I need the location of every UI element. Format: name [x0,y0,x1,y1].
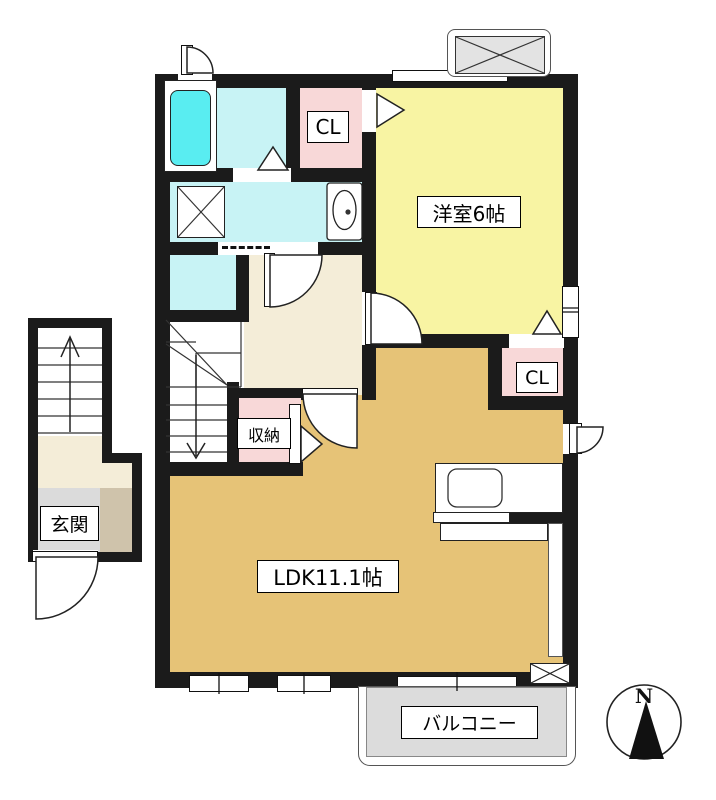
doorway-bathroom [233,168,291,182]
wall-bath-closet [286,82,300,180]
kitchen-counter [435,463,563,513]
outer-wall-right [563,74,578,688]
window-bottom-2 [277,675,331,692]
ac-unit-box [455,36,545,74]
label-compass-north: N [630,684,658,708]
washing-machine-pan [177,186,225,238]
label-genkan-text: 玄関 [50,510,88,537]
door-leaf-yoshitsu [365,292,377,345]
door-arc-genkan [36,557,98,619]
door-leaf-service-right [569,423,582,454]
wall-smallroom-hall [236,255,249,318]
label-balcony-text: バルコニー [422,709,517,736]
label-closet-top: CL [307,111,349,143]
hallway-floor [236,250,376,400]
window-right [562,286,579,338]
entrance-landing-wide [38,463,132,488]
doorway-washroom [272,242,318,255]
bathtub [170,90,211,166]
label-shuno-text: 収納 [248,422,280,446]
label-closet-right: CL [516,362,558,393]
doorway-closet-top [362,90,376,132]
doorway-cl-right [509,334,564,348]
label-compass-north-text: N [635,684,653,708]
door-leaf-genkan [32,551,98,562]
label-ldk: LDK11.1帖 [257,560,399,593]
wall-smallroom-stairs [155,310,249,322]
curtain-dashed-line [222,246,270,249]
refrigerator-space [548,523,563,657]
label-genkan: 玄関 [40,506,99,541]
wall-stairs-bottom [155,462,303,476]
label-ldk-text: LDK11.1帖 [273,562,382,592]
kitchen-counter-edge [433,512,510,523]
stairs-external-floor [38,328,102,438]
genkan-step [100,488,132,552]
floor-plan: 洋室6帖 CL CL 収納 LDK11.1帖 玄関 バルコニー N [0,0,716,800]
kitchen-bar-table [440,523,548,541]
pipe-space-box [530,663,570,684]
wall-cl-right-bottom [488,396,578,410]
compass-needle [629,701,664,759]
label-yoshitsu-text: 洋室6帖 [433,198,506,227]
label-closet-right-text: CL [525,367,549,389]
label-balcony: バルコニー [401,706,538,739]
wall-hall-stub [362,345,376,400]
door-leaf-ldk [302,388,358,400]
label-yoshitsu: 洋室6帖 [417,196,521,228]
label-closet-top-text: CL [315,115,340,139]
window-bottom-1 [189,675,249,692]
label-shuno: 収納 [237,418,291,449]
door-leaf-washroom [264,253,275,307]
door-leaf-service-top [181,45,193,75]
